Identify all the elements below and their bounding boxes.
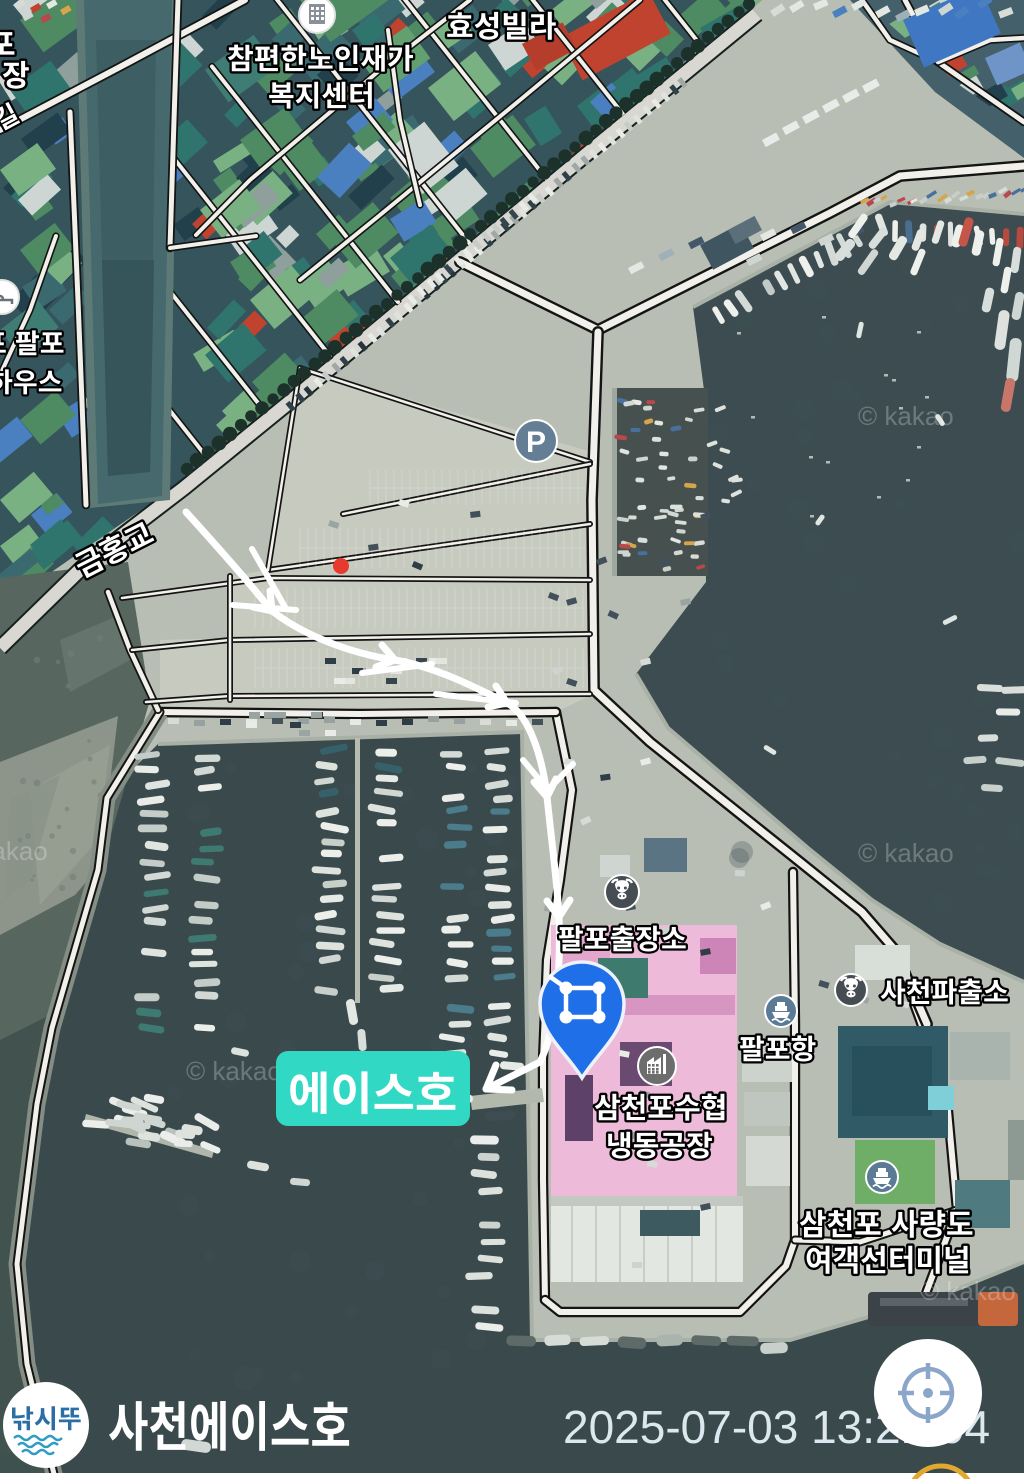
svg-text:© kakao: © kakao [0, 836, 48, 866]
svg-text:© kakao: © kakao [920, 1276, 1016, 1306]
svg-text:P: P [526, 426, 546, 459]
svg-text:© kakao: © kakao [858, 838, 954, 868]
svg-text:© kakao: © kakao [186, 1056, 282, 1086]
svg-text:© kakao: © kakao [858, 401, 954, 431]
